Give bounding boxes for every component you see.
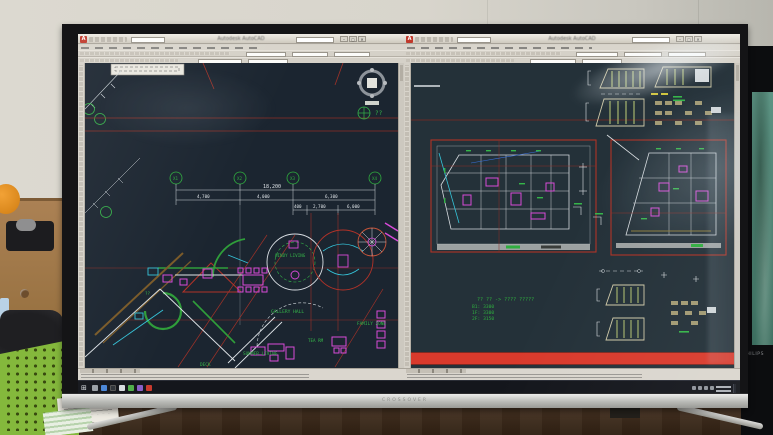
section-details-top	[586, 67, 721, 126]
toolbar-buttons[interactable]	[80, 52, 230, 55]
clock[interactable]	[716, 385, 731, 392]
section-details-bottom	[597, 270, 716, 341]
maximize-button[interactable]: ▢	[685, 36, 693, 42]
dim-text: 4,700	[197, 194, 210, 199]
browser-icon[interactable]	[101, 385, 107, 391]
grid-bubbles-row	[170, 172, 381, 184]
annotation-line: ?? ?? -> ???? ?????	[477, 297, 534, 303]
light-app-icon[interactable]	[119, 385, 125, 391]
language-icon[interactable]	[710, 386, 714, 390]
chevron-icon[interactable]	[692, 386, 696, 390]
annotation-line: 2F: 3150	[472, 316, 494, 322]
side-toolbar[interactable]	[404, 63, 411, 368]
photo-scene: PHILIPS A Autodesk AutoCAD – ▢ ✕	[0, 0, 773, 435]
round-room	[313, 230, 373, 290]
red-line	[335, 289, 383, 367]
site-plan-drawing: ?? X1 X2 X3 X4	[85, 63, 398, 368]
toolbar-buttons[interactable]	[80, 59, 178, 62]
secondary-monitor-screen	[752, 92, 773, 345]
grid-label: X3	[290, 176, 296, 181]
dimension-markers	[573, 163, 601, 225]
show-desktop-button[interactable]	[733, 384, 736, 393]
grid-bubble	[85, 104, 95, 115]
network-icon[interactable]	[698, 386, 702, 390]
monitor-brand: CROSSOVER	[62, 398, 748, 403]
grid-label: X1	[173, 176, 179, 181]
maximize-button[interactable]: ▢	[349, 36, 357, 42]
close-button[interactable]: ✕	[694, 36, 702, 42]
dim-text: 400	[294, 204, 302, 209]
drawing-canvas-right[interactable]: ?? ?? -> ???? ????? B1: 3300 1F: 3300 2F…	[411, 63, 734, 368]
window-buttons[interactable]: – ▢ ✕	[676, 36, 702, 42]
autocad-window-right: A Autodesk AutoCAD – ▢ ✕	[404, 34, 740, 380]
vertical-scrollbar[interactable]	[734, 63, 740, 368]
command-line[interactable]	[404, 368, 740, 380]
red-line	[203, 63, 214, 89]
minimize-button[interactable]: –	[676, 36, 684, 42]
black-speaker	[6, 221, 54, 251]
grid-bubble	[101, 207, 112, 218]
room-label: FAMILY ZONE	[357, 321, 386, 327]
taskbar-app-icons[interactable]	[92, 385, 152, 392]
dim-text: 6,000	[347, 204, 360, 209]
window-buttons[interactable]: – ▢ ✕	[340, 36, 366, 42]
grid-label: X4	[372, 176, 378, 181]
dim-label-blur	[595, 213, 603, 215]
monitor-bezel-bottom: CROSSOVER	[62, 393, 748, 408]
drawing-label-box	[111, 64, 184, 75]
dimension-line	[85, 158, 140, 213]
annotation-line: 1F: 3300	[472, 310, 494, 316]
speaker-disc	[16, 219, 36, 231]
unknown-glyph-text: ??	[145, 291, 151, 296]
close-button[interactable]: ✕	[358, 36, 366, 42]
red-line	[335, 63, 343, 85]
toolbar-buttons[interactable]	[406, 52, 561, 55]
minimize-button[interactable]: –	[340, 36, 348, 42]
toolbar-row-1[interactable]	[404, 50, 740, 57]
green-app-icon[interactable]	[128, 385, 134, 391]
annotation-line: B1: 3300	[472, 304, 494, 310]
main-monitor: A Autodesk AutoCAD – ▢ ✕	[62, 24, 748, 408]
room-label: WINDY LIVING	[275, 253, 306, 258]
search-input[interactable]	[296, 37, 334, 43]
command-text-blur	[407, 374, 642, 379]
dim-text: 18,200	[263, 184, 281, 190]
wall	[193, 301, 235, 343]
dim-text: 4,000	[257, 194, 270, 199]
model-layout-tabs[interactable]	[80, 369, 140, 373]
search-input[interactable]	[632, 37, 670, 43]
viewport-label-blur	[414, 85, 440, 87]
dim-text: 2,700	[313, 204, 326, 209]
room-label: GALLERY HALL	[271, 309, 304, 315]
room-label: TEA RM	[308, 338, 324, 343]
toolbar-row-1[interactable]	[78, 50, 404, 57]
autocad-window-left: A Autodesk AutoCAD – ▢ ✕	[78, 34, 404, 380]
unknown-glyph-text: ??	[375, 110, 383, 117]
volume-icon[interactable]	[704, 386, 708, 390]
green-striped-paper	[43, 407, 94, 435]
drawing-canvas-left[interactable]: ?? X1 X2 X3 X4	[85, 63, 398, 368]
start-button[interactable]: ⊞	[81, 384, 89, 392]
floorplan-sheet-b	[607, 135, 726, 255]
cabinet-knob	[20, 289, 29, 298]
grid-label: X2	[237, 176, 243, 181]
screen: A Autodesk AutoCAD – ▢ ✕	[78, 34, 740, 393]
explorer-icon[interactable]	[92, 385, 98, 391]
stair-hatch	[385, 223, 398, 241]
dim-label-blur	[574, 203, 582, 205]
model-layout-tabs[interactable]	[406, 369, 466, 373]
round-room	[267, 234, 323, 290]
room-label: SUMMER LIVING	[243, 351, 278, 357]
floorplan-sheets-drawing: ?? ?? -> ???? ????? B1: 3300 1F: 3300 2F…	[411, 63, 734, 368]
grid-bubble	[95, 114, 106, 125]
command-text-blur	[81, 374, 309, 379]
system-tray[interactable]	[692, 383, 736, 393]
dim-text: 6,300	[325, 194, 338, 199]
windows-taskbar[interactable]: ⊞	[78, 380, 740, 393]
titlebar[interactable]: A Autodesk AutoCAD – ▢ ✕	[404, 34, 740, 44]
spiral-stair	[358, 228, 386, 256]
red-highlight-bar	[411, 352, 734, 365]
dark-app-icon[interactable]	[110, 385, 116, 391]
purple-app-icon[interactable]	[137, 385, 143, 391]
fixture	[338, 255, 348, 267]
titlebar[interactable]: A Autodesk AutoCAD – ▢ ✕	[78, 34, 404, 44]
floorplan-sheet-a	[431, 140, 596, 252]
autocad-icon[interactable]	[146, 385, 152, 391]
side-toolbar[interactable]	[78, 63, 85, 368]
toolbar-buttons[interactable]	[406, 59, 514, 62]
command-line[interactable]	[78, 368, 404, 380]
navigation-wheel-icon[interactable]	[357, 68, 387, 105]
